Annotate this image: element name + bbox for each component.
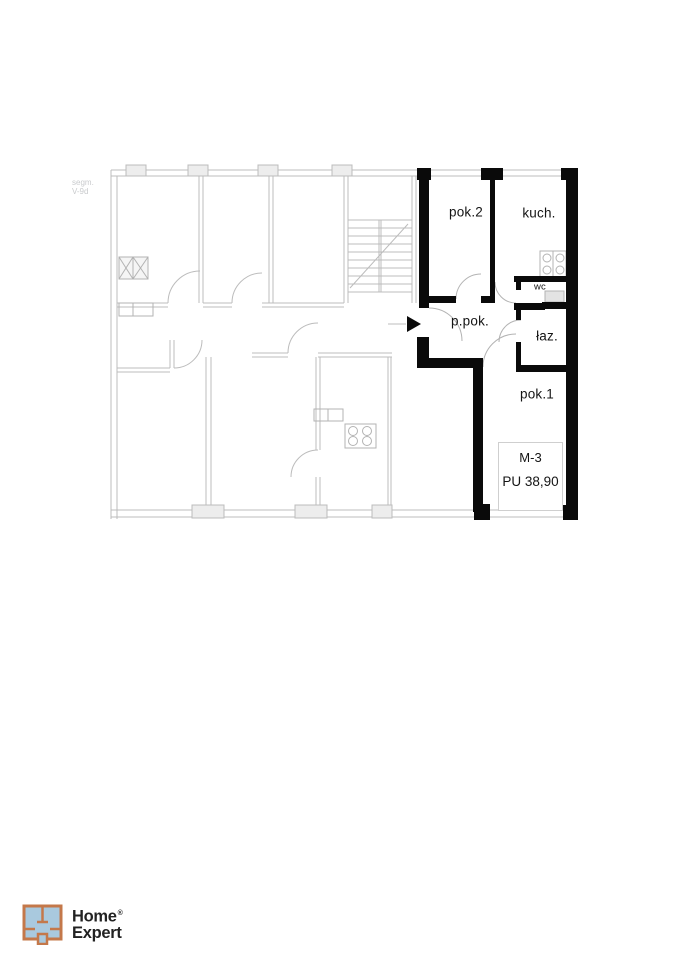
staircase	[348, 220, 412, 292]
home-expert-logo: Home® Expert	[22, 903, 123, 945]
room-label-wc: wc	[534, 282, 546, 293]
floorplan-page: pok.2 kuch. wc p.pok. łaz. pok.1 segm. V…	[0, 0, 679, 960]
kitchen-fixtures	[119, 251, 566, 448]
floor-note-line2: V-9d	[72, 187, 94, 196]
logo-word1: Home®	[72, 906, 123, 925]
room-label-laz: łaz.	[536, 329, 558, 344]
room-label-ppok: p.pok.	[451, 314, 489, 329]
unit-id: M-3	[519, 450, 541, 465]
logo-word2: Expert	[72, 925, 123, 941]
unit-info-card: M-3 PU 38,90	[498, 442, 563, 511]
room-label-pok1: pok.1	[520, 387, 554, 402]
vent-shaft	[545, 291, 564, 302]
unit-area: PU 38,90	[502, 474, 558, 489]
logo-text: Home® Expert	[72, 903, 123, 941]
stove-icon	[540, 251, 566, 277]
room-label-kuch: kuch.	[522, 206, 555, 221]
floorplan-logo-icon	[22, 903, 63, 945]
floorplan-drawing	[0, 0, 679, 960]
registered-mark: ®	[118, 910, 123, 917]
room-label-pok2: pok.2	[449, 205, 483, 220]
entrance-arrow-icon	[407, 316, 421, 332]
floor-note: segm. V-9d	[72, 178, 94, 196]
window-piers	[126, 165, 392, 518]
floor-note-line1: segm.	[72, 178, 94, 187]
